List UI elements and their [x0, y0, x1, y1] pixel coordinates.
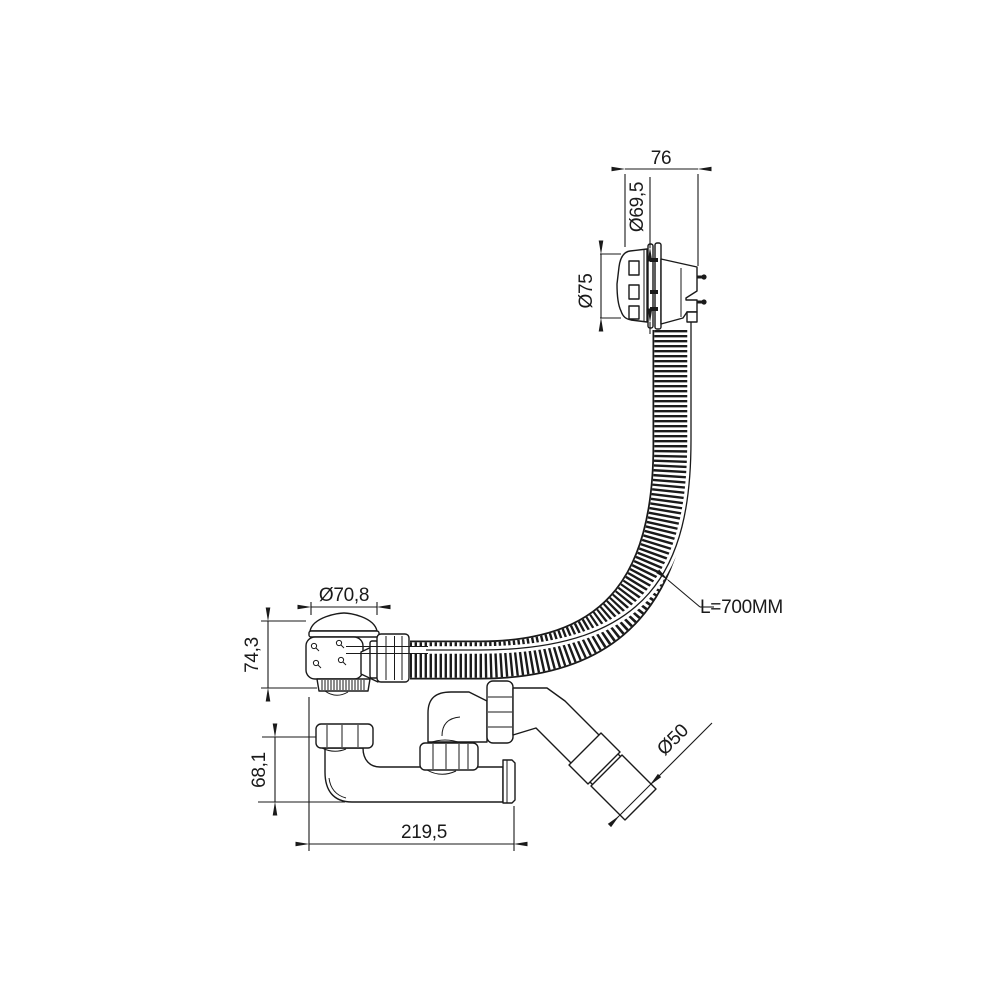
bath-waste-overflow-drawing: 76 Ø69,5 Ø75 L=700MM Ø70,8 74,3 68,1: [0, 0, 1000, 1000]
dim-label-trap-height: 68,1: [249, 752, 270, 788]
popup-plug: [310, 613, 377, 631]
dim-label-waste-height: 74,3: [242, 637, 263, 673]
overflow-flange: [648, 244, 653, 328]
dim-label-overflow-cap-dia: Ø75: [576, 273, 597, 308]
hose-nut: [370, 634, 409, 682]
cable-gland: [687, 312, 697, 322]
dim-label-hose-length: L=700MM: [700, 597, 783, 618]
trap-inlet-nut: [316, 724, 373, 751]
elbow-lower-nut: [420, 743, 478, 770]
dim-label-plug-dia: Ø70,8: [319, 585, 369, 606]
dim-label-overflow-pipe-dia: Ø69,5: [627, 182, 648, 232]
dim-label-overflow-depth: 76: [651, 148, 672, 169]
dim-label-outlet-dia: Ø50: [653, 720, 693, 760]
technical-drawing-page: 76 Ø69,5 Ø75 L=700MM Ø70,8 74,3 68,1: [0, 0, 1000, 1000]
waste-fitting: [306, 613, 428, 695]
overflow-fitting: [617, 243, 707, 329]
dim-label-trap-length: 219,5: [401, 822, 447, 843]
overflow-screws: [697, 274, 707, 304]
outlet-elbow: [420, 681, 513, 774]
trap-assembly: [316, 681, 656, 820]
waste-thread: [317, 679, 370, 695]
pipe-socket: [503, 760, 515, 803]
